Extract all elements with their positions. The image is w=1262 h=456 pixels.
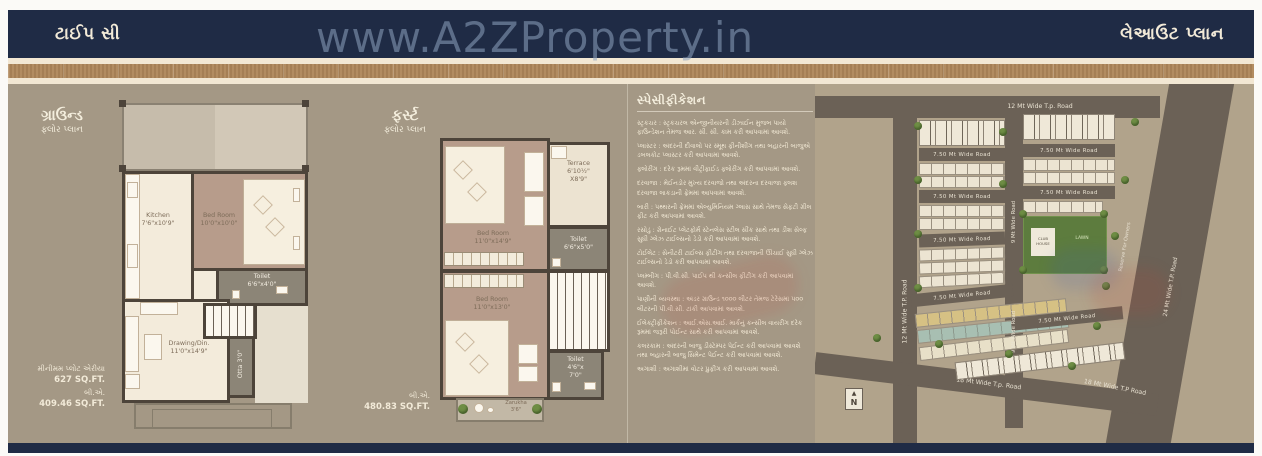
room-name: Bed Room [476, 296, 508, 303]
spec-paragraph: દરવાજા : મેઈનડોર મુખ્ય દરવાજો તથા અંદરના… [637, 179, 813, 197]
north-label: N [851, 398, 858, 407]
road-12-top-label: 12 Mt Wide T.p. Road [975, 103, 1105, 110]
road-7-50-band: 7.50 Mt Wide Road [919, 232, 1005, 248]
room-size: 7'6"x10'9" [141, 220, 174, 227]
room-name: Bed Room [477, 230, 509, 237]
specifications-title: સ્પેસીફીકેશન [637, 93, 813, 112]
tree-icon [914, 176, 922, 184]
ground-floor-title: ગ્રાઉન્ડ ફ્લોર પ્લાન [12, 106, 112, 135]
pillow-icon [293, 188, 300, 202]
room-name: Terrace [567, 160, 590, 167]
layout-plan-title: લેઆઉટ પ્લાન [1120, 24, 1254, 44]
bed-quilt-pattern [467, 182, 487, 202]
plant-icon [532, 404, 542, 414]
room-size: 3'6" [511, 407, 521, 413]
bed-icon [243, 179, 305, 265]
cabinet-icon [524, 196, 544, 226]
footer-bar [8, 443, 1254, 453]
room-size: 6'6"x4'0" [247, 281, 276, 288]
plot-strip [1023, 172, 1115, 184]
terrace-label: Terrace 6'10½" X8'9" [551, 160, 606, 185]
road-9-label: 9 Mt Wide Road [1011, 282, 1017, 382]
room-name: Zarukha [505, 400, 527, 406]
chair-icon [487, 407, 494, 413]
tree-icon [935, 340, 943, 348]
ba-value: 480.83 SQ.FT. [364, 402, 430, 412]
road-7-50-band: 7.50 Mt Wide Road [919, 148, 1005, 161]
tree-icon [873, 334, 881, 342]
type-title: ટાઈપ સી [8, 24, 120, 44]
reserve-label: Reserve For Owners [1114, 199, 1137, 295]
toilet1-label: Toilet 6'6"x5'0" [549, 236, 608, 252]
table-icon [474, 403, 484, 413]
room-size: 6'10½" [567, 168, 590, 175]
tree-icon [1111, 232, 1119, 240]
wc-icon [552, 382, 561, 392]
first-floor-title-main: ફર્સ્ટ [363, 106, 447, 124]
plot-strip [919, 163, 1005, 175]
otta-label: Otta 3'0" [237, 336, 245, 392]
spec-paragraph: સ્ટ્રકચર : સ્ટ્રકચરલ એન્જીનીયરની ડીઝાઈન … [637, 119, 813, 137]
plot-strip [1023, 159, 1115, 171]
road-7-50-band: 7.50 Mt Wide Road [919, 190, 1005, 203]
room-name: Kitchen [146, 212, 170, 219]
plot-row-houses [919, 120, 1005, 146]
wall-post [119, 100, 126, 107]
min-plot-label: મીનીમમ પ્લોટ એરીયા [38, 364, 105, 373]
bed-quilt-pattern [253, 195, 273, 215]
room-size: 11'0"x14'9" [474, 238, 511, 245]
specifications-section: સ્પેસીફીકેશન સ્ટ્રકચર : સ્ટ્રકચરલ એન્જીન… [637, 93, 813, 440]
open-court [122, 103, 308, 171]
room-name: Bed Room [203, 212, 235, 219]
north-arrow-icon: ▲ [846, 389, 862, 398]
watermark-text: www.A2ZProperty.in [316, 13, 816, 62]
tree-icon [999, 128, 1007, 136]
kitchen-label: Kitchen 7'6"x10'9" [122, 212, 194, 228]
tree-icon [914, 284, 922, 292]
room-size: 7'0" [569, 372, 582, 379]
first-floor-title: ફર્સ્ટ ફ્લોર પ્લાન [363, 106, 447, 135]
spec-paragraph: ટોઈલેટ : સેનીટરી ટાઈલ્સ ફીટીંગ તથા દરવાજ… [637, 249, 813, 267]
drawing-label: Drawing/Din. 11'0"x14'9" [156, 340, 222, 356]
brochure-page: ટાઈપ સી લેઆઉટ પ્લાન www.A2ZProperty.in ગ… [0, 0, 1262, 456]
toilet-gf-label: Toilet 6'6"x4'0" [216, 273, 308, 289]
bed-icon [445, 146, 505, 224]
tree-icon [1019, 266, 1027, 274]
spec-paragraph: અગાશી : અગાશીમાં વોટર પ્રુફીંગ કરી આપવામ… [637, 365, 813, 374]
sofa-icon [140, 302, 178, 315]
spec-paragraph: રસોડું : ગ્રેનાઈટ પ્લેટફોર્મ સ્ટેનલેસ સ્… [637, 226, 813, 244]
room-name: Drawing/Din. [169, 340, 210, 347]
tree-icon [1005, 350, 1013, 358]
tree-icon [1131, 118, 1139, 126]
bed-quilt-pattern [469, 354, 489, 374]
road-7-50-band: 7.50 Mt Wide Road [1023, 186, 1115, 199]
wall-post [302, 100, 309, 107]
road-7-50-band: 7.50 Mt Wide Road [1023, 144, 1115, 157]
bed-quilt-pattern [455, 332, 475, 352]
plot-row-houses [1023, 114, 1115, 140]
plot-strip [919, 205, 1005, 217]
specifications-list: સ્ટ્રકચર : સ્ટ્રકચરલ એન્જીનીયરની ડીઝાઈન … [637, 119, 813, 374]
spec-paragraph: પ્લાસ્ટર : અંદરની દીવાલો પર સ્મૂથ ફીનીશી… [637, 142, 813, 160]
ground-floor-title-main: ગ્રાઉન્ડ [12, 106, 112, 124]
staircase-ff [547, 270, 610, 352]
spec-paragraph: કલરકામ : અંદરની બાજુ ડીસ્ટેમ્પર પેઈન્ટ ક… [637, 342, 813, 360]
tree-icon [1100, 210, 1108, 218]
bed-quilt-pattern [265, 217, 285, 237]
tree-icon [1019, 210, 1027, 218]
bed-icon [445, 320, 509, 396]
entrance-step [152, 409, 272, 429]
room-size: 10'0"x10'0" [200, 220, 237, 227]
plot-strip [1023, 201, 1103, 213]
spec-paragraph: ફ્લોરીંગ : દરેક રૂમમાં વીટ્રીફાઈડ ફ્લોરી… [637, 165, 813, 174]
room-size: 6'6"x5'0" [564, 244, 593, 251]
lawn-label: LAWN [1067, 236, 1097, 241]
tree-icon [1100, 266, 1108, 274]
bedroom1-label: Bed Room 11'0"x14'9" [455, 230, 531, 246]
spec-paragraph: ઈલેક્ટ્રીફીકેશન : આઈ.એસ.આઈ. માર્કનું કન્… [637, 319, 813, 337]
basin-icon [584, 382, 596, 390]
ba-label: બી.એ. [84, 388, 105, 397]
north-arrow: ▲ N [845, 388, 863, 410]
first-floor-title-sub: ફ્લોર પ્લાન [363, 125, 447, 135]
seat-icon [518, 366, 538, 382]
tree-icon [1068, 362, 1076, 370]
room-size: 11'0"x14'9" [170, 348, 207, 355]
tree-icon [1093, 322, 1101, 330]
staircase-gf [203, 303, 257, 339]
room-name: Toilet [570, 236, 586, 243]
room-size: X8'9" [570, 176, 587, 183]
bed-quilt-pattern [453, 160, 473, 180]
wardrobe-icon [444, 252, 524, 266]
cream-stripe-bottom [8, 78, 1254, 84]
ground-floor-title-sub: ફ્લોર પ્લાન [12, 125, 112, 135]
spec-paragraph: બારી : પથ્થરની ફ્રેમમાં એલ્યુમિનિયમ ગ્લા… [637, 203, 813, 221]
plant-icon [458, 404, 468, 414]
site-layout-plan: 12 Mt Wide T.p. Road 12 Mt Wide T.P. Roa… [815, 84, 1254, 443]
toilet2-label: Toilet 4'6"x 7'0" [549, 356, 602, 381]
bedroom-gf-label: Bed Room 10'0"x10'0" [192, 212, 246, 228]
stove-icon [127, 244, 138, 268]
wall-post [302, 165, 309, 172]
seat-icon [518, 344, 538, 364]
tree-icon [1121, 176, 1129, 184]
road-9-label: 9 Mt Wide Road [1011, 172, 1017, 272]
ba-label: બી.એ. [409, 391, 430, 400]
road-12-left-label: 12 Mt Wide T.P. Road [902, 242, 909, 382]
wall-post [119, 165, 126, 172]
pillow-icon [293, 236, 300, 250]
club-house: CLUB HOUSE [1031, 228, 1055, 256]
ba-value: 409.46 SQ.FT. [39, 399, 105, 409]
tree-icon [914, 230, 922, 238]
first-floor-areas: બી.એ. 480.83 SQ.FT. [330, 390, 430, 414]
wc-icon [232, 290, 240, 299]
room-size: 4'6"x [567, 364, 583, 371]
planter-icon [551, 146, 567, 159]
min-plot-value: 627 SQ.FT. [54, 375, 105, 385]
bedroom2-label: Bed Room 11'0"x13'0" [453, 296, 531, 312]
sofa-icon [125, 316, 139, 372]
section-divider [627, 84, 628, 443]
ground-floor-areas: મીનીમમ પ્લોટ એરીયા 627 SQ.FT. બી.એ. 409.… [5, 363, 105, 411]
tree-icon [1102, 282, 1110, 290]
spec-paragraph: પાણીની વ્યવસ્થા : અંડર ગ્રાઉન્ડ ૧૦૦૦ લીટ… [637, 295, 813, 313]
plot-strip [919, 176, 1005, 188]
room-name: Toilet [567, 356, 583, 363]
brown-striped-band [8, 64, 1254, 78]
room-name: Toilet [254, 273, 270, 280]
sink-icon [127, 182, 138, 198]
tree-icon [999, 180, 1007, 188]
plot-strip [919, 218, 1005, 230]
seat-icon [125, 374, 140, 389]
cabinet-icon [524, 152, 544, 192]
wardrobe-icon [444, 274, 524, 288]
tree-icon [914, 122, 922, 130]
room-size: 11'0"x13'0" [473, 304, 510, 311]
wc-icon [552, 258, 561, 267]
side-yard [255, 306, 308, 403]
spec-paragraph: પ્લમ્બીંગ : પી.વી.સી. પાઈપ થી કન્સીલ ફીટ… [637, 272, 813, 290]
